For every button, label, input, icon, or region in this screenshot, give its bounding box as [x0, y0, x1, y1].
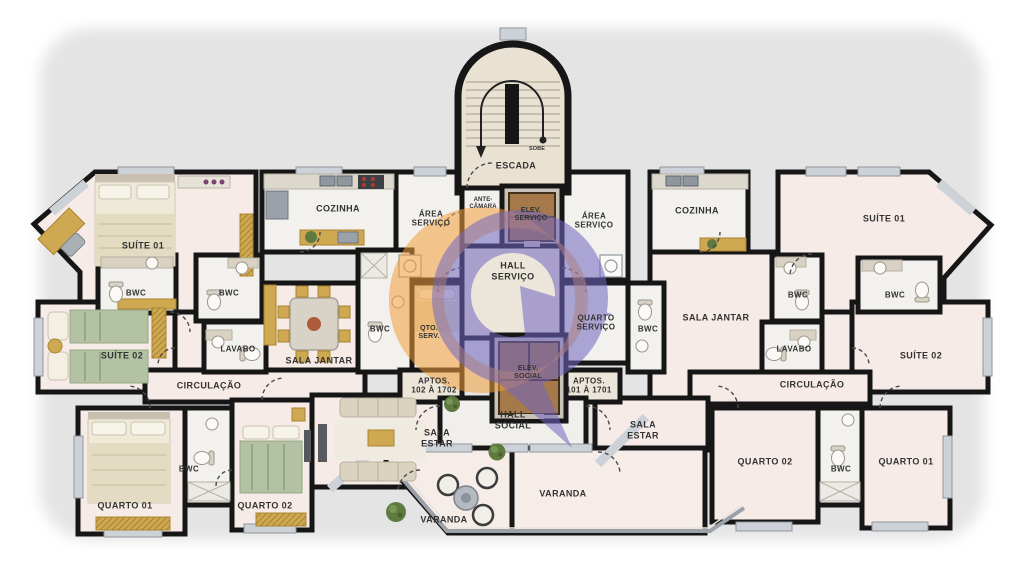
floor-plan: SOBE ESCADA ANTE- CÂMARA ELEV. SERVIÇO Á… — [0, 0, 1024, 585]
floor-plan-drawing — [0, 0, 1024, 585]
